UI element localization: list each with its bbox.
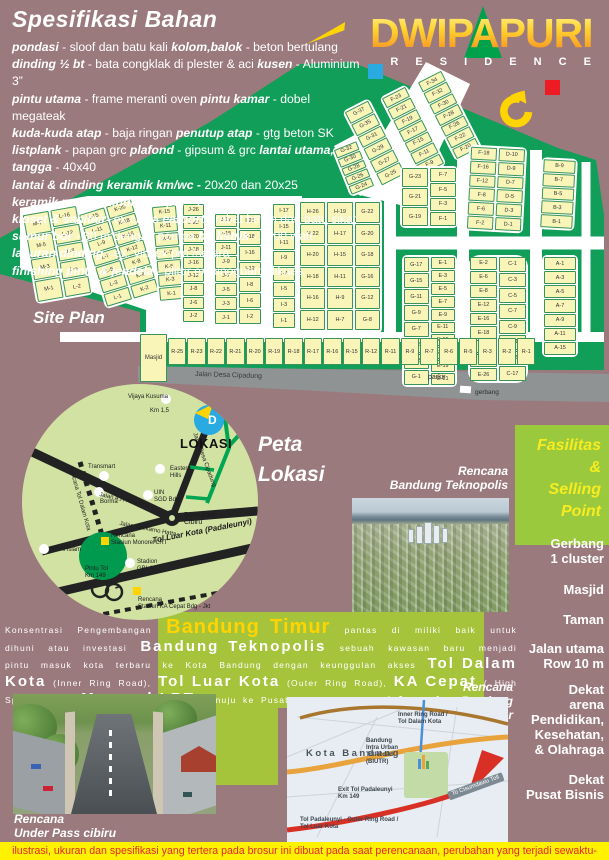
disclaimer-bar: ilustrasi, ukuran dan spesifikasi yang t…: [0, 842, 609, 860]
toll-map-label: Tol Padaleunyi - Outer Ring Road / Tol L…: [300, 817, 398, 831]
brochure-page: M-7M-5M-3M-1L-16L-12L-8L-4L-2L-15L-11L-9…: [0, 0, 609, 860]
toll-map-label: Inner Ring Road / Tol Dalam Kota: [398, 712, 448, 726]
map-photo-labels: Inner Ring Road / Tol Dalam KotaBandung …: [0, 0, 609, 860]
toll-map-label: Kota Bandung: [306, 750, 401, 757]
toll-map-label: Exit Tol Padaleunyi Km 149: [338, 787, 393, 801]
toll-map-label: To Cisumdawu Toll: [447, 772, 505, 800]
